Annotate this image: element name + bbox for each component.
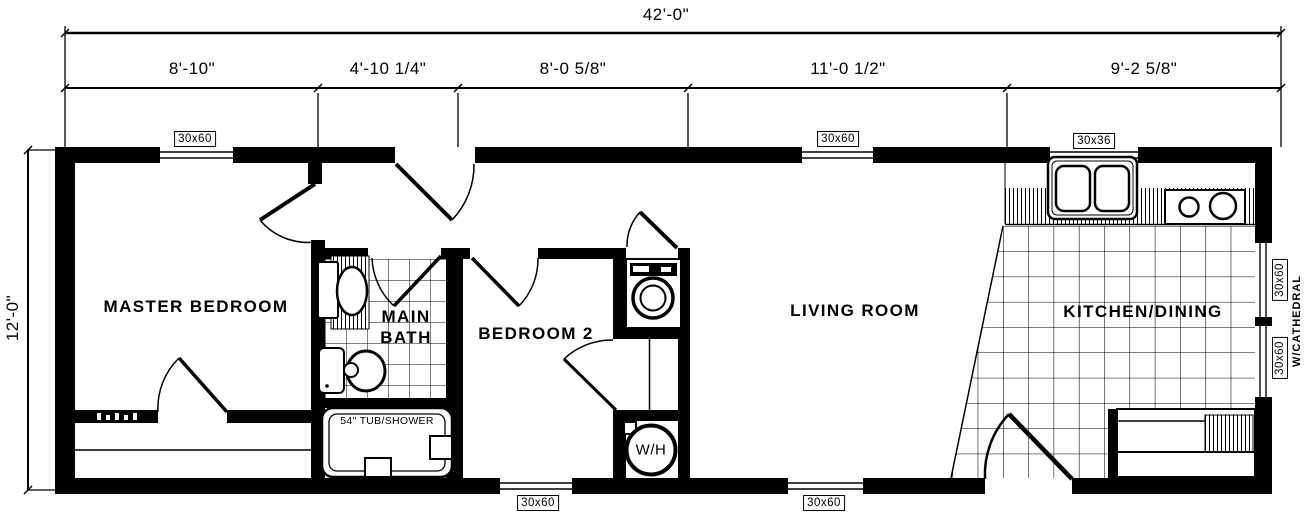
- room-label-living-room: LIVING ROOM: [790, 301, 920, 321]
- overall-width-dimension: 42'-0": [643, 5, 689, 25]
- kitchen-sink: [1048, 157, 1137, 219]
- window-label-living-top: 30x60: [817, 131, 859, 147]
- tub-shower-label: 54" TUB/SHOWER: [340, 415, 434, 427]
- washer: [626, 259, 681, 328]
- dimension-segment-2: 4'-10 1/4": [350, 59, 427, 79]
- main-bath-line1: MAIN: [380, 306, 432, 327]
- window-label-living-bottom: 30x60: [803, 495, 845, 511]
- floor-plan: 42'-0" 8'-10" 4'-10 1/4" 8'-0 5/8" 11'-0…: [0, 0, 1315, 519]
- window-label-master-top: 30x60: [174, 131, 216, 147]
- cathedral-note: W/CATHEDRAL: [1291, 275, 1303, 367]
- toilet: [318, 256, 369, 329]
- room-label-kitchen-dining: KITCHEN/DINING: [1063, 302, 1222, 322]
- room-label-bedroom2: BEDROOM 2: [478, 324, 594, 344]
- dimension-segment-4: 11'-0 1/2": [810, 59, 885, 79]
- kitchen-counter-bottom: [1117, 409, 1255, 477]
- stove: [1165, 190, 1245, 224]
- main-bath-line2: BATH: [380, 327, 432, 348]
- dimension-segment-1: 8'-10": [169, 59, 215, 79]
- water-heater-label: W/H: [636, 442, 667, 459]
- room-label-main-bath: MAIN BATH: [380, 306, 432, 348]
- window-label-right-lower: 30x60: [1272, 337, 1288, 379]
- window-label-right-upper: 30x60: [1272, 259, 1288, 301]
- window-label-bedroom2-bottom: 30x60: [517, 495, 559, 511]
- dimension-segment-3: 8'-0 5/8": [540, 59, 607, 79]
- dimension-segment-5: 9'-2 5/8": [1111, 59, 1178, 79]
- overall-depth-dimension: 12'-0": [3, 295, 23, 341]
- window-label-kitchen-top: 30x36: [1073, 133, 1115, 149]
- room-label-master-bedroom: MASTER BEDROOM: [104, 297, 289, 317]
